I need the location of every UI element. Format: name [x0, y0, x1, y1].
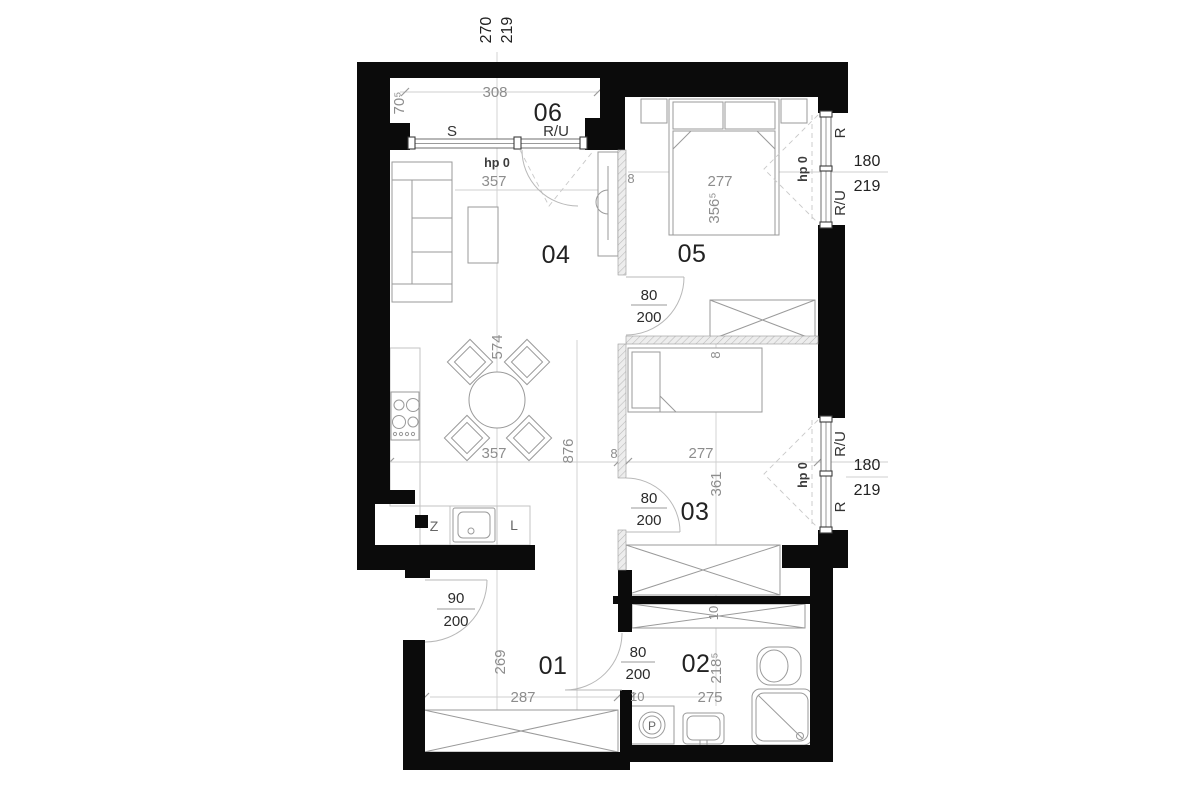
door-03-h: 200 — [636, 512, 661, 529]
wardrobe-hall — [424, 710, 618, 752]
sofa — [392, 162, 452, 302]
dim-01-length: 269 — [492, 649, 509, 674]
dim-03-length: 361 — [708, 471, 725, 496]
double-bed — [641, 99, 807, 235]
dim-01-wall: 10 — [630, 689, 644, 704]
washer-p-label: P — [648, 719, 656, 733]
win-05-w: 180 — [854, 153, 881, 170]
window-panel-s: S — [447, 123, 457, 140]
door-entrance-w: 90 — [448, 590, 465, 607]
dim-top-w: 270 — [478, 17, 495, 44]
dim-loggia-depth: 70⁵ — [391, 92, 408, 115]
dining-table — [469, 372, 525, 428]
dim-top-h: 219 — [499, 17, 516, 44]
dim-03-wall-top: 8 — [708, 351, 723, 358]
win-05-top: R — [832, 127, 849, 138]
dim-04-bottom: 357 — [481, 445, 506, 462]
tv-unit — [596, 152, 618, 256]
room-number-01: 01 — [539, 652, 568, 680]
room-number-05: 05 — [678, 240, 707, 268]
dim-02-width: 275 — [697, 689, 722, 706]
door-entrance-h: 200 — [443, 613, 468, 630]
dim-03-wall-bottom: 10 — [706, 606, 721, 620]
win-05-h: 219 — [854, 178, 881, 195]
dim-02-length: 218⁵ — [708, 652, 725, 683]
room-number-03: 03 — [681, 498, 710, 526]
door-bath-h: 200 — [625, 666, 650, 683]
wardrobe-bedroom05 — [710, 300, 815, 340]
dim-loggia-width: 308 — [482, 84, 507, 101]
room-number-02: 02 — [682, 650, 711, 678]
win-05-bottom: R/U — [832, 190, 849, 216]
washbasin — [683, 713, 724, 747]
bedroom05-door — [626, 277, 684, 335]
win-03-h: 219 — [854, 482, 881, 499]
dim-05-length: 356⁵ — [706, 192, 723, 223]
hp-label-04: hp 0 — [484, 156, 510, 170]
dim-wall-8: 8 — [610, 446, 617, 461]
win-03-bottom: R — [832, 501, 849, 512]
shower — [752, 689, 812, 745]
win-03-w: 180 — [854, 457, 881, 474]
dim-03-width: 277 — [688, 445, 713, 462]
single-bed — [628, 348, 762, 412]
coffee-table — [468, 207, 498, 263]
dim-01-width: 287 — [510, 689, 535, 706]
door-05-h: 200 — [636, 309, 661, 326]
kitchen-l-label: L — [510, 517, 518, 533]
door-03-w: 80 — [641, 490, 658, 507]
win-05-hp: hp 0 — [796, 156, 810, 182]
dim-04-span: 876 — [560, 438, 577, 463]
door-05-w: 80 — [641, 287, 658, 304]
dim-table: 574 — [489, 334, 506, 359]
dim-04-top: 357 — [481, 173, 506, 190]
kitchen-z-label: Z — [430, 518, 439, 534]
room-number-04: 04 — [542, 241, 571, 269]
dim-05-wall: 8 — [627, 171, 634, 186]
floor-plan-drawing: 270 219 308 70⁵ 06 S R/U hp 0 357 04 574… — [0, 0, 1200, 800]
floor-plan-page: 270 219 308 70⁵ 06 S R/U hp 0 357 04 574… — [0, 0, 1200, 800]
bathroom-door — [565, 633, 622, 690]
door-bath-w: 80 — [630, 644, 647, 661]
win-03-hp: hp 0 — [796, 462, 810, 488]
wardrobe-room03 — [626, 545, 780, 595]
win-03-top: R/U — [832, 431, 849, 457]
kitchen-counter-hob — [390, 348, 420, 506]
toilet — [757, 647, 801, 685]
dim-05-width: 277 — [707, 173, 732, 190]
window-panel-ru: R/U — [543, 123, 569, 140]
